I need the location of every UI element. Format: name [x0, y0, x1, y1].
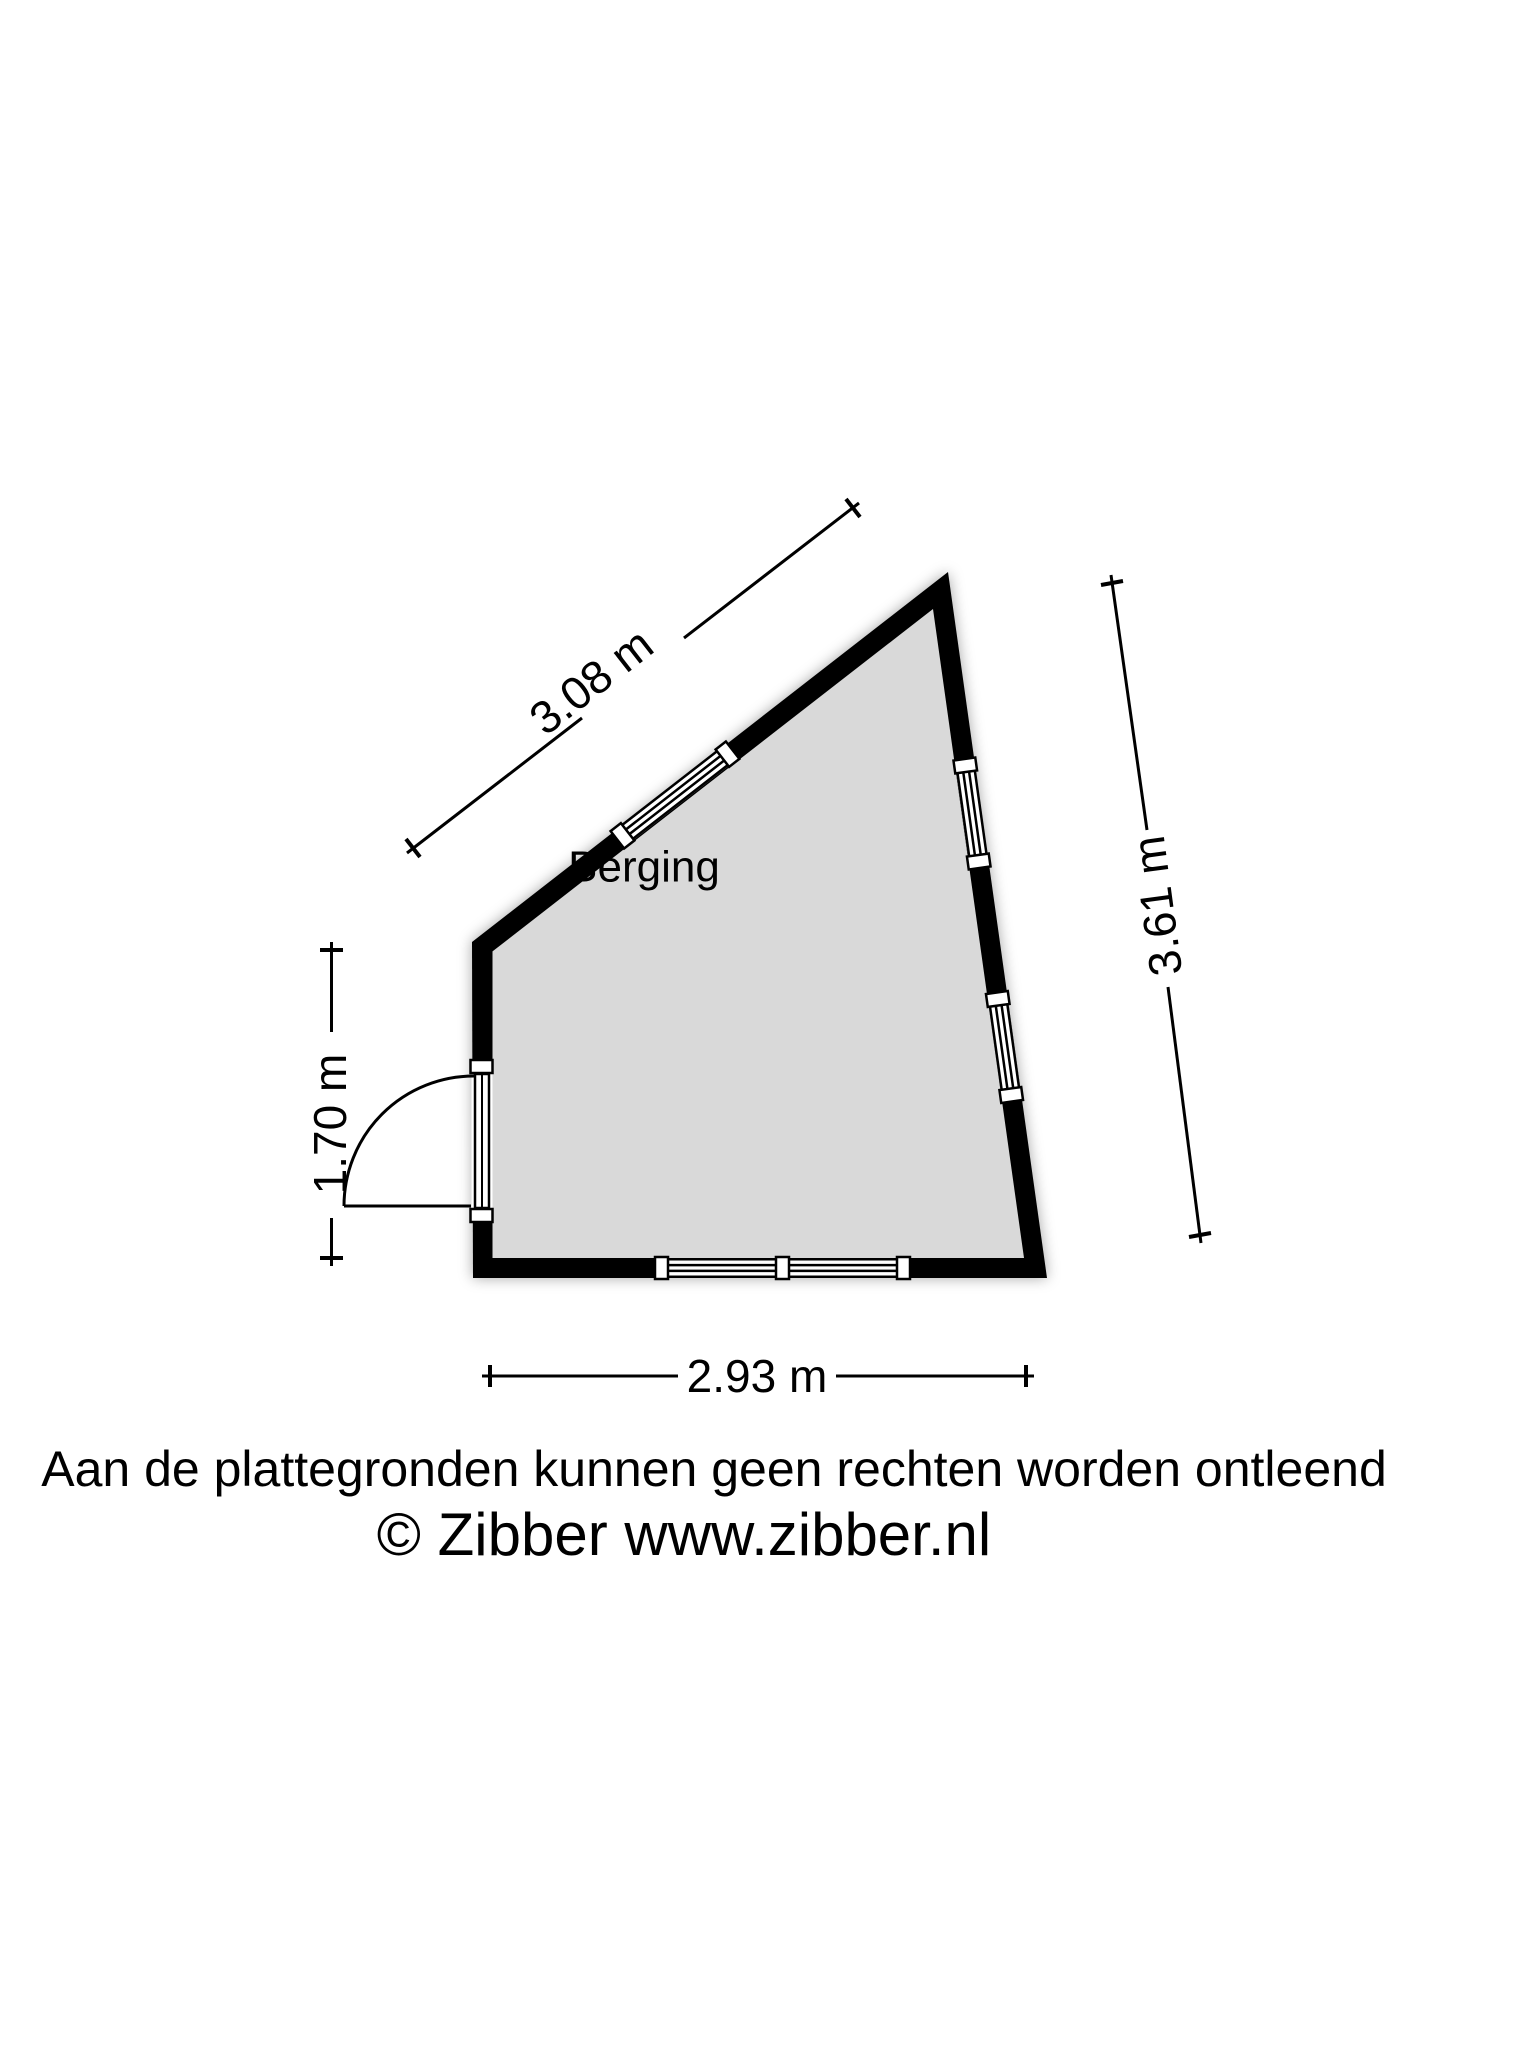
- dimension-bottom-label: 2.93 m: [687, 1350, 828, 1402]
- dimension-line: [1111, 575, 1147, 830]
- door-swing-arc: [344, 1076, 474, 1206]
- window-jamb: [999, 1087, 1023, 1103]
- dimension-tick: [1189, 1233, 1211, 1237]
- room-label: Berging: [568, 842, 720, 891]
- dimension-line: [684, 503, 859, 638]
- dimension-tick: [406, 839, 420, 857]
- window-jamb: [776, 1257, 789, 1279]
- door: [344, 1060, 493, 1222]
- window-jamb: [655, 1257, 668, 1279]
- dimension-left-label: 1.70 m: [304, 1054, 356, 1195]
- floorplan-page: 3.08 m 3.61 m 1.70 m 2.93 m Berging Aan …: [0, 0, 1536, 2048]
- floorplan-canvas: 3.08 m 3.61 m 1.70 m 2.93 m Berging: [0, 0, 1536, 2048]
- window-jamb: [967, 854, 991, 870]
- disclaimer-text: Aan de plattegronden kunnen geen rechten…: [41, 1440, 1387, 1498]
- door-jamb: [471, 1060, 493, 1073]
- dimension-top-label: 3.08 m: [520, 617, 663, 744]
- dimension-tick: [846, 499, 860, 517]
- copyright-text: © Zibber www.zibber.nl: [377, 1500, 991, 1569]
- door-jamb: [471, 1209, 493, 1222]
- window-bottom: [655, 1257, 910, 1279]
- window-jamb: [953, 758, 977, 774]
- dimension-line: [1168, 987, 1201, 1243]
- dimension-tick: [1101, 581, 1123, 585]
- dimension-right-label: 3.61 m: [1122, 833, 1192, 979]
- window-jamb: [986, 991, 1010, 1007]
- window-jamb: [897, 1257, 910, 1279]
